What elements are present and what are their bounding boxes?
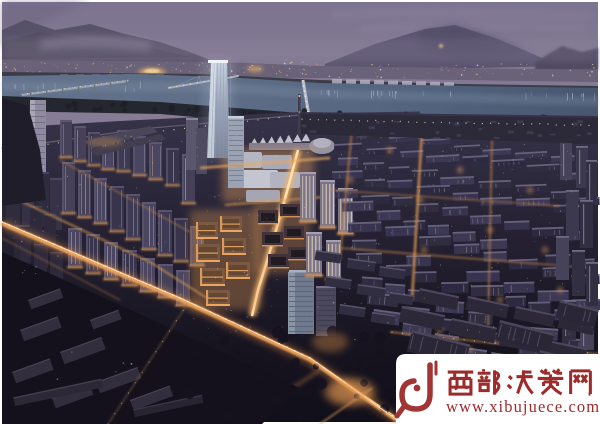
- svg-text:www.xibujuece.com: www.xibujuece.com: [446, 397, 600, 416]
